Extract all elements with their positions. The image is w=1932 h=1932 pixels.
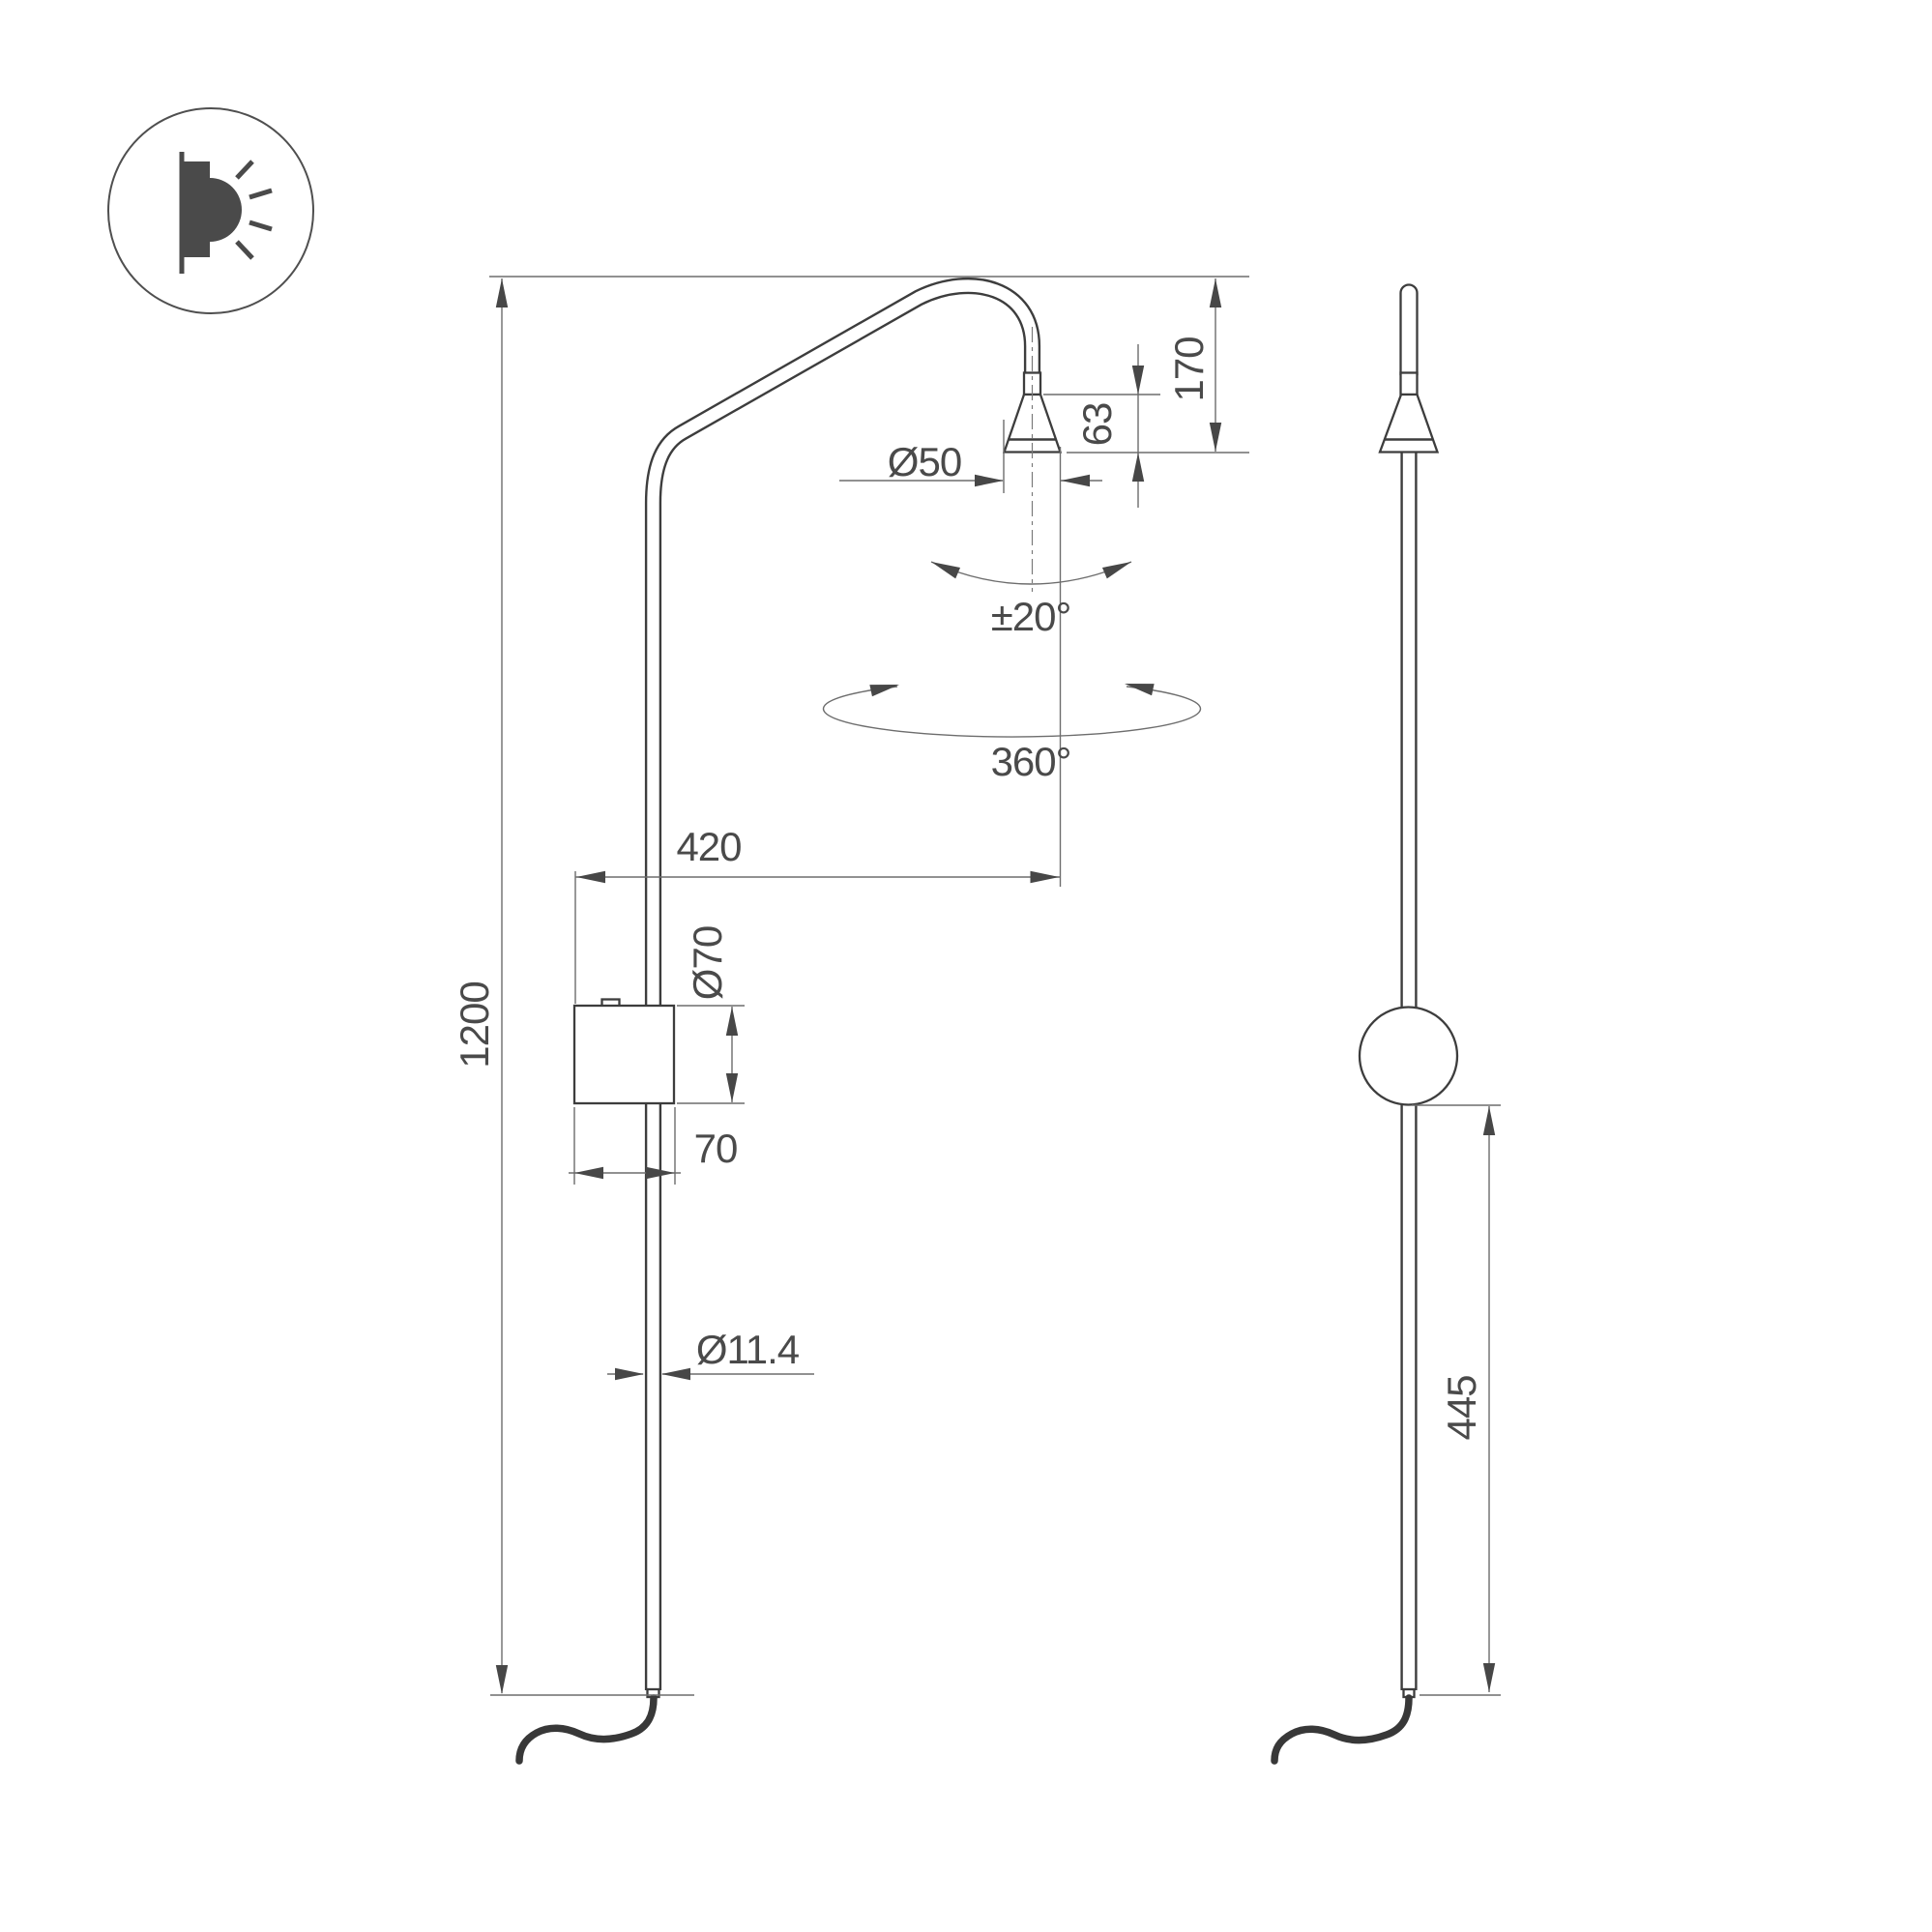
arrowhead <box>615 1368 644 1380</box>
side-ball <box>1360 1008 1457 1105</box>
arrowhead <box>1132 366 1144 395</box>
wall-light-icon <box>182 152 272 274</box>
dim-label-170: 170 <box>1166 337 1212 401</box>
arrowhead <box>1210 423 1221 452</box>
arrowhead <box>929 556 960 578</box>
tilt-arc <box>931 562 1131 584</box>
front-view <box>519 286 1061 1761</box>
dim-label-70: 70 <box>694 1126 738 1171</box>
tilt-indicator: ±20° <box>929 556 1134 639</box>
dim-1200: 1200 <box>452 278 508 1694</box>
dim-dia11-4: Ø11.4 <box>607 1327 814 1380</box>
dim-label-dia50: Ø50 <box>888 439 961 484</box>
dim-label-445: 445 <box>1439 1375 1484 1440</box>
dimensions: 1200 170 63 Ø50 <box>452 277 1501 1695</box>
arrowhead <box>726 1007 738 1036</box>
dim-label-dia70: Ø70 <box>685 926 730 1000</box>
arrowhead <box>869 679 900 696</box>
dim-label-1200: 1200 <box>452 981 497 1068</box>
dim-label-dia11-4: Ø11.4 <box>696 1327 800 1372</box>
arrowhead <box>1483 1106 1495 1135</box>
drawing-canvas: 1200 170 63 Ø50 <box>0 0 1932 1932</box>
arrowhead <box>661 1368 690 1380</box>
side-view <box>1274 285 1457 1762</box>
arrowhead <box>1031 871 1060 883</box>
arrowhead <box>1132 453 1144 482</box>
side-power-cable <box>1274 1698 1409 1761</box>
dim-label-63: 63 <box>1074 403 1120 447</box>
rotation-indicator: 360° <box>824 678 1201 784</box>
arrowhead <box>576 871 605 883</box>
side-head-cone <box>1380 395 1438 453</box>
dim-445: 445 <box>1412 1105 1501 1695</box>
dim-label-420: 420 <box>676 824 741 869</box>
arrowhead <box>574 1167 603 1179</box>
arrowhead <box>1102 556 1133 578</box>
arrowhead <box>496 1665 508 1694</box>
side-head-joint <box>1401 373 1418 395</box>
arrowhead <box>1483 1663 1495 1692</box>
dim-dia50: Ø50 <box>839 420 1102 887</box>
dim-dia70: Ø70 <box>677 926 745 1103</box>
rotation-ellipse <box>824 687 1201 737</box>
side-arm-tube <box>1401 285 1418 375</box>
rotation-label: 360° <box>991 739 1071 784</box>
arrowhead <box>975 475 1004 486</box>
technical-drawing: 1200 170 63 Ø50 <box>0 0 1932 1932</box>
tilt-label: ±20° <box>991 594 1071 639</box>
arrowhead <box>1061 475 1090 486</box>
arrowhead <box>726 1073 738 1102</box>
wall-box <box>574 1006 674 1103</box>
wall-light-badge <box>108 108 313 313</box>
power-cable <box>519 1698 654 1761</box>
arrowhead <box>496 278 508 307</box>
arrowhead <box>1210 278 1221 307</box>
